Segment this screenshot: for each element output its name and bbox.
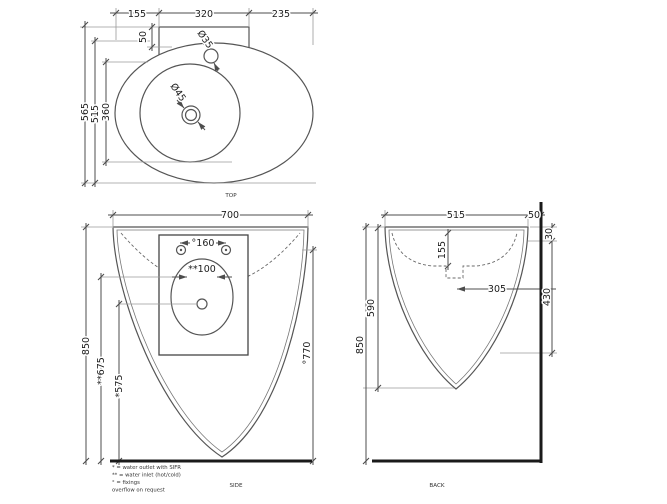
- fixing-hole-right-center: [225, 249, 227, 251]
- dim-label-515-top: 515: [90, 105, 101, 123]
- top-view: 155 320 235 50 565 515 360 Ø35 Ø45 TOP: [80, 8, 318, 199]
- dim-label-850-side: 850: [81, 337, 92, 355]
- side-view: 700 °160 **100 850 **675 *575 °770 SIDE: [81, 210, 317, 489]
- dim-label-675: **675: [96, 357, 107, 385]
- legend-line-overflow: overflow on request: [112, 488, 165, 494]
- view-label-top: TOP: [224, 193, 237, 199]
- dim-label-50-deck: 50: [138, 31, 149, 43]
- dim-label-850-back: 850: [355, 336, 366, 354]
- washbasin-dimension-drawing: 155 320 235 50 565 515 360 Ø35 Ø45 TOP: [0, 0, 667, 500]
- dim-label-700: 700: [221, 210, 239, 221]
- fixing-hole-left-center: [180, 249, 182, 251]
- dim-label-155-bowl: 155: [437, 241, 448, 259]
- technical-drawing-page: 155 320 235 50 565 515 360 Ø35 Ø45 TOP: [0, 0, 667, 500]
- dim-label-360: 360: [101, 103, 112, 121]
- back-view: 515 50 30 155 305 430 590 850 BACK: [355, 202, 557, 489]
- dim-label-50-wall: 50: [528, 210, 540, 221]
- dim-label-160: °160: [192, 238, 215, 249]
- dim-label-430: 430: [542, 288, 553, 306]
- dim-label-320: 320: [195, 9, 213, 20]
- service-recess: [159, 235, 248, 355]
- dim-label-515-back: 515: [447, 210, 465, 221]
- dim-label-590: 590: [366, 299, 377, 317]
- dim-label-575: *575: [114, 375, 125, 398]
- view-label-side: SIDE: [229, 483, 243, 489]
- view-label-back: BACK: [429, 483, 444, 489]
- legend-line-inlet: ** = water inlet (hot/cold): [112, 473, 181, 479]
- legend-line-fixings: ° = fixings: [112, 480, 140, 486]
- dim-label-305: 305: [488, 284, 506, 295]
- legend-line-outlet: * = water outlet with SIFR: [112, 465, 181, 471]
- dim-label-155: 155: [128, 9, 146, 20]
- dim-label-770: °770: [302, 342, 313, 365]
- legend: * = water outlet with SIFR ** = water in…: [112, 465, 181, 494]
- dim-label-100: **100: [188, 264, 216, 275]
- dim-label-30: 30: [544, 228, 555, 240]
- dim-label-235: 235: [272, 9, 290, 20]
